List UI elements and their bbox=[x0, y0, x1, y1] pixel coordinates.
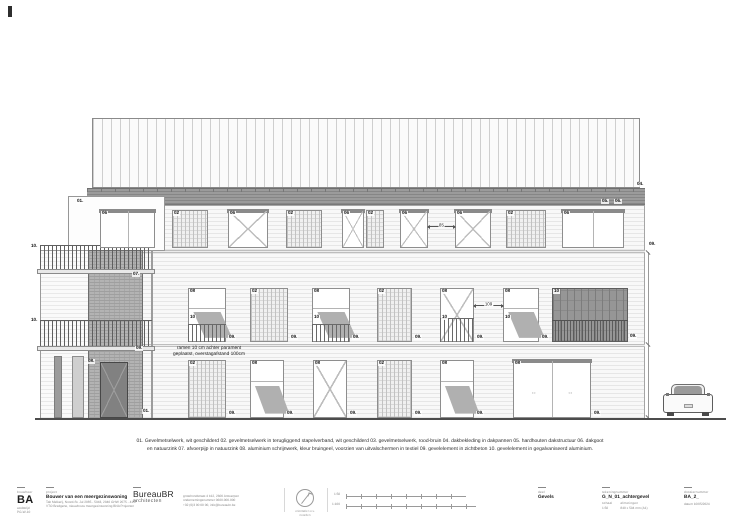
annotation-label: 07. bbox=[132, 272, 140, 277]
window-label: 08 bbox=[189, 289, 196, 294]
scale-value: 1:50 bbox=[602, 506, 612, 510]
balcony-railing-upper bbox=[40, 245, 152, 269]
window-06: 06 bbox=[228, 210, 268, 248]
window-02: 02 bbox=[286, 210, 322, 248]
car-drawing bbox=[663, 384, 713, 418]
north-caption: orientatie t.o.v. noorden bbox=[288, 510, 322, 518]
annotation-label: 09. bbox=[352, 335, 360, 340]
annotation-label: 09. bbox=[290, 335, 298, 340]
annotation-label: 09. bbox=[414, 411, 422, 416]
window-label: 06 bbox=[101, 211, 108, 216]
window-06: 06 bbox=[342, 210, 364, 248]
window-sub-label: 10 bbox=[441, 315, 448, 320]
roof-standing-seam bbox=[92, 118, 640, 188]
logo-sub-2: PG-W-10 bbox=[17, 510, 34, 514]
car-wheel bbox=[702, 412, 709, 416]
titleblock-divider bbox=[284, 488, 285, 512]
annotation-label: 08. bbox=[87, 359, 95, 364]
annotation-label: 09. bbox=[228, 411, 236, 416]
window-08: ↔↔08 bbox=[513, 360, 591, 418]
window-02: 02 bbox=[188, 360, 226, 418]
window-06: 06 bbox=[455, 210, 491, 248]
annotation-label: 09. bbox=[476, 411, 484, 416]
window-02: 02 bbox=[250, 288, 288, 342]
scalebar-1 bbox=[346, 496, 466, 497]
window-label: 02 bbox=[251, 289, 258, 294]
annotation-label: 10. bbox=[30, 318, 38, 323]
titleblock-divider bbox=[327, 488, 328, 512]
floor-slab-line-1 bbox=[90, 250, 645, 253]
annotation-label: 06. bbox=[614, 199, 622, 204]
window-label: 08 bbox=[251, 361, 258, 366]
roof-tile-band bbox=[87, 188, 645, 205]
right-dimension-line bbox=[648, 252, 649, 418]
client-logo: BA bbox=[17, 495, 34, 506]
titleblock-part-cell: deel Gevels bbox=[538, 487, 554, 500]
window-label: 08 bbox=[514, 361, 521, 366]
window-06: 06 bbox=[562, 210, 624, 248]
window-label: 02 bbox=[173, 211, 180, 216]
window-02: 02 bbox=[366, 210, 384, 248]
car-mirror bbox=[707, 393, 710, 396]
annotation-label: 09. bbox=[648, 242, 656, 247]
date-value: datum 10/05/2024 bbox=[684, 502, 710, 506]
dossier-number: BA_2_ bbox=[684, 495, 710, 500]
scalebar-label-2: 1:100 bbox=[332, 503, 340, 506]
car-wheel bbox=[667, 412, 674, 416]
window-label: 06 bbox=[229, 211, 236, 216]
annotation-label: 09. bbox=[593, 411, 601, 416]
drawing-number: G_N_01_achtergevel bbox=[602, 495, 649, 500]
dimension-line: 109 bbox=[474, 305, 503, 306]
architect-name-sub: architecten bbox=[133, 498, 174, 504]
legend-line-1: 01. Gevelmetselwerk, wit geschilderd 02.… bbox=[58, 438, 682, 446]
annotation-label: 09. bbox=[414, 335, 422, 340]
car-rear-window bbox=[674, 386, 702, 394]
dimension-line: 85 bbox=[428, 226, 455, 227]
titleblock-logo-cell: bouwheer BA wedstrijd PG-W-10 bbox=[17, 487, 34, 514]
project-title: Bouwer van een meergezinswoning bbox=[46, 495, 137, 500]
window-label: 08 bbox=[441, 289, 448, 294]
architect-name: BureauBR bbox=[133, 490, 174, 499]
annotation-label: 09. bbox=[349, 411, 357, 416]
annex-door-strip bbox=[54, 356, 62, 418]
window-02: 02 bbox=[377, 288, 412, 342]
part-header: deel bbox=[538, 490, 554, 494]
titleblock-dossier-cell: dossiernummer BA_2_ datum 10/05/2024 bbox=[684, 487, 710, 506]
window-label: 02 bbox=[378, 361, 385, 366]
window-label: 02 bbox=[287, 211, 294, 216]
window-label: 02 bbox=[367, 211, 374, 216]
car-license-plate bbox=[684, 404, 693, 408]
part-value: Gevels bbox=[538, 495, 554, 500]
annotation-label: 09. bbox=[135, 346, 143, 351]
window-sub-label: 10 bbox=[313, 315, 320, 320]
scalebar-2 bbox=[346, 506, 476, 507]
window-label: 06 bbox=[401, 211, 408, 216]
window-10: 10 bbox=[552, 288, 628, 342]
annotation-label: 09. bbox=[541, 335, 549, 340]
sheet-corner-mark bbox=[8, 6, 12, 17]
window-08: 08 bbox=[440, 360, 474, 418]
balcony-railing-lower bbox=[40, 320, 152, 346]
scalebar-label-1: 1:50 bbox=[334, 493, 340, 496]
dossier-header: dossiernummer bbox=[684, 490, 710, 494]
scale-label: schaal bbox=[602, 501, 612, 505]
window-label: 10 bbox=[553, 289, 560, 294]
annotation-label: 10. bbox=[30, 244, 38, 249]
window-06: 06 bbox=[100, 210, 155, 248]
legend-line-2: en natuurzink 07. afvoerpijp in natuurzi… bbox=[58, 446, 682, 454]
annotation-label: 09. bbox=[286, 411, 294, 416]
window-label: 08 bbox=[314, 361, 321, 366]
window-sub-label: 10 bbox=[189, 315, 196, 320]
window-label: 06 bbox=[563, 211, 570, 216]
project-sub-2: VTO Bredgene, nieuwbouw meergezinswoning… bbox=[46, 504, 137, 508]
window-label: 08 bbox=[313, 289, 320, 294]
annotation-label: 09. bbox=[228, 335, 236, 340]
annex-window-strip bbox=[72, 356, 84, 418]
annotation-label: 01. bbox=[76, 199, 84, 204]
window-08: 0810 bbox=[440, 288, 474, 342]
window-02: 02 bbox=[506, 210, 546, 248]
annotation-label: 09. bbox=[476, 335, 484, 340]
window-label: 02 bbox=[189, 361, 196, 366]
logo-header: bouwheer bbox=[17, 490, 34, 494]
tower-door bbox=[100, 362, 128, 418]
window-08: 0810 bbox=[188, 288, 226, 342]
window-label: 06 bbox=[456, 211, 463, 216]
annotation-label: 01. bbox=[142, 409, 150, 414]
format-value: 840 x 594 mm (A1) bbox=[620, 506, 647, 510]
window-02: 02 bbox=[377, 360, 412, 418]
material-legend: 01. Gevelmetselwerk, wit geschilderd 02.… bbox=[58, 438, 682, 454]
format-label: afmetingen bbox=[620, 501, 647, 505]
window-label: 02 bbox=[378, 289, 385, 294]
titleblock-architect-info: grotehondstraat 4 b12, 2600 Antwerpen on… bbox=[183, 494, 239, 507]
ground-line bbox=[35, 418, 726, 420]
window-sub-label: 10 bbox=[504, 315, 511, 320]
window-02: 02 bbox=[172, 210, 208, 248]
window-08: 08 bbox=[313, 360, 347, 418]
architect-info-3: +32 (0)3 00 00 00, info@bureaubr.be bbox=[183, 503, 239, 507]
annotation-label: 09. bbox=[629, 334, 637, 339]
car-mirror bbox=[666, 393, 669, 396]
window-label: 06 bbox=[343, 211, 350, 216]
window-label: 08 bbox=[504, 289, 511, 294]
window-08: 08 bbox=[250, 360, 284, 418]
drawing-number-header: tekeningnummer bbox=[602, 490, 649, 494]
window-label: 08 bbox=[441, 361, 448, 366]
project-header: project bbox=[46, 490, 137, 494]
placement-note: ramen 10 cm achter parament geplaatst, o… bbox=[170, 346, 248, 358]
titleblock-project-cell: project Bouwer van een meergezinswoning … bbox=[46, 487, 137, 508]
window-08: 0810 bbox=[503, 288, 539, 342]
window-08: 0810 bbox=[312, 288, 350, 342]
window-06: 06 bbox=[400, 210, 428, 248]
window-label: 02 bbox=[507, 211, 514, 216]
titleblock-architect-cell: BureauBR architecten bbox=[133, 487, 174, 504]
titleblock-drawing-cell: tekeningnummer G_N_01_achtergevel schaal… bbox=[602, 487, 649, 510]
north-arrow-icon bbox=[296, 489, 314, 507]
annotation-label: 05. bbox=[601, 199, 609, 204]
annotation-label: 04. bbox=[636, 182, 644, 187]
